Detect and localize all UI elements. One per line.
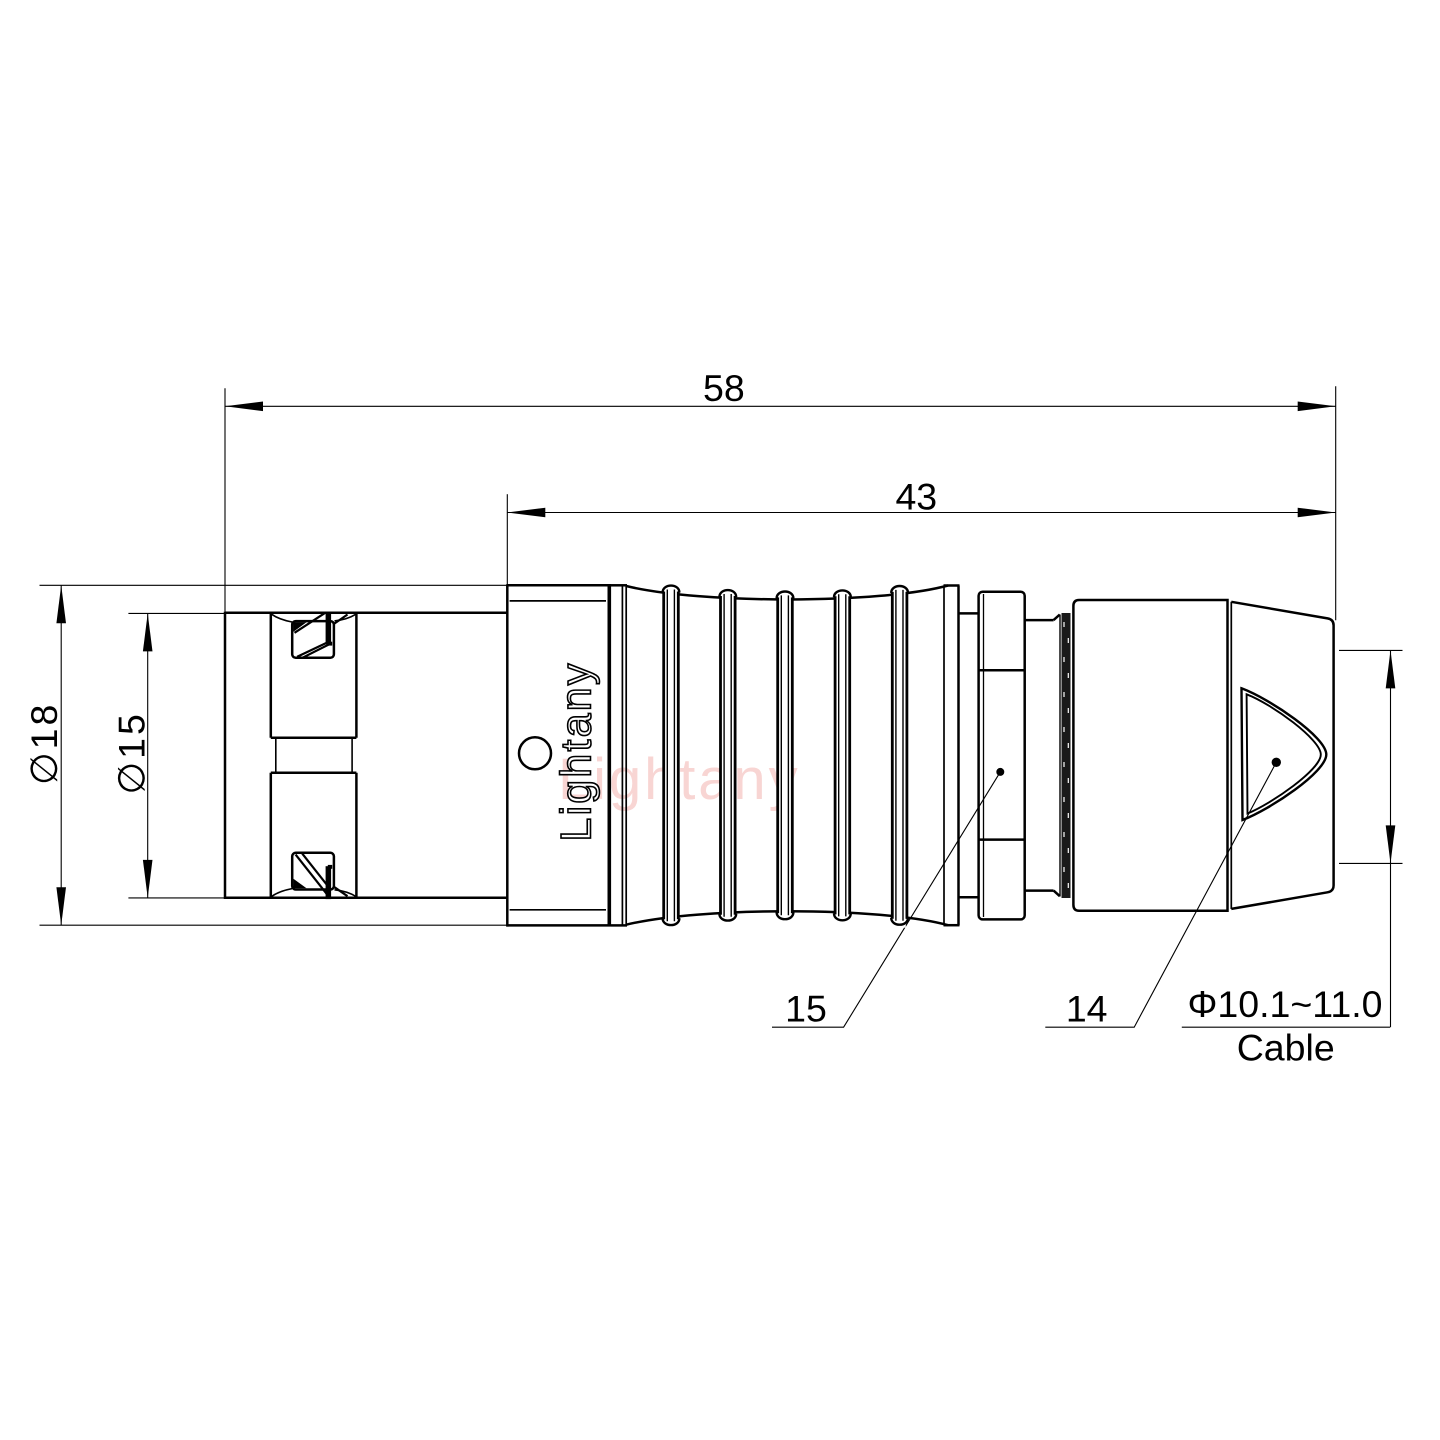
svg-text:58: 58 xyxy=(703,367,745,409)
svg-text:15: 15 xyxy=(785,987,827,1029)
svg-text:Lightany: Lightany xyxy=(553,661,601,841)
svg-text:Cable: Cable xyxy=(1237,1027,1335,1069)
svg-text:14: 14 xyxy=(1066,987,1108,1029)
svg-text:∅18: ∅18 xyxy=(23,702,65,785)
svg-text:Φ10.1~11.0: Φ10.1~11.0 xyxy=(1187,983,1382,1025)
svg-text:43: 43 xyxy=(895,475,937,517)
svg-text:∅15: ∅15 xyxy=(111,711,153,794)
